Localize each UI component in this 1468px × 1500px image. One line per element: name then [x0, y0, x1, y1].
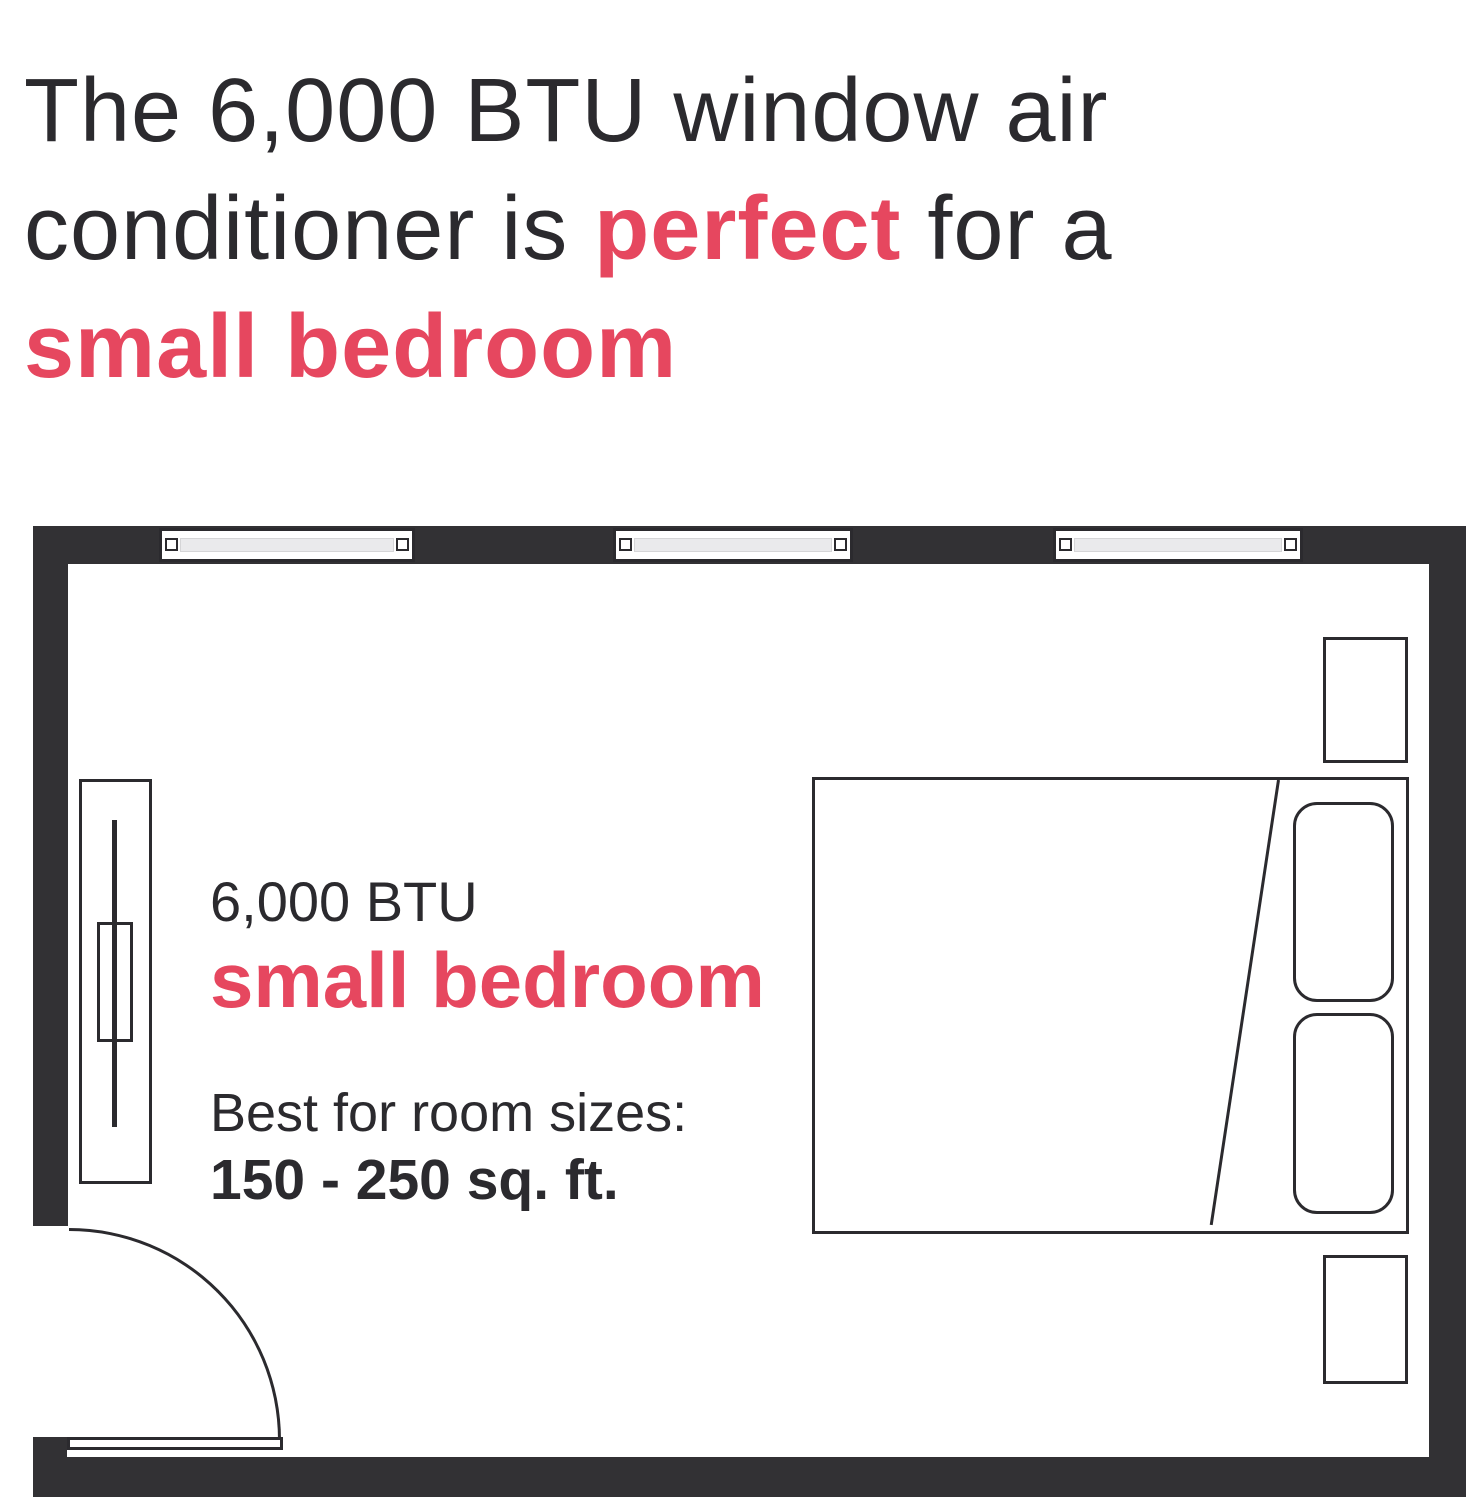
window-2-glass-bar — [634, 538, 832, 552]
window-1-glass-bar — [180, 538, 394, 552]
window-3-right-square — [1284, 538, 1297, 551]
label-best-for: Best for room sizes: — [210, 1082, 765, 1144]
door-swing-arc — [69, 1228, 281, 1440]
label-btu: 6,000 BTU — [210, 870, 765, 934]
window-2-left-square — [619, 538, 632, 551]
pillow-top — [1293, 802, 1394, 1002]
floor-plan-label: 6,000 BTU small bedroom Best for room si… — [210, 870, 765, 1212]
wall-bottom — [67, 1457, 1466, 1497]
pillow-bottom — [1293, 1013, 1394, 1214]
nightstand-top — [1323, 637, 1408, 763]
window-3-glass-bar — [1074, 538, 1282, 552]
label-size-range: 150 - 250 sq. ft. — [210, 1148, 765, 1212]
wall-left — [33, 526, 68, 1226]
air-conditioner-inner-box — [97, 922, 133, 1042]
nightstand-bottom — [1323, 1255, 1408, 1384]
infographic-canvas: The 6,000 BTU window airconditioner is p… — [0, 0, 1468, 1500]
door-jamb — [33, 1437, 67, 1497]
window-3 — [1053, 528, 1303, 562]
label-room-type: small bedroom — [210, 936, 765, 1024]
window-2-right-square — [834, 538, 847, 551]
floor-plan-diagram: 6,000 BTU small bedroom Best for room si… — [0, 0, 1468, 1500]
wall-right — [1429, 526, 1466, 1497]
window-1 — [159, 528, 415, 562]
window-3-left-square — [1059, 538, 1072, 551]
window-1-left-square — [165, 538, 178, 551]
window-1-right-square — [396, 538, 409, 551]
window-2 — [613, 528, 853, 562]
